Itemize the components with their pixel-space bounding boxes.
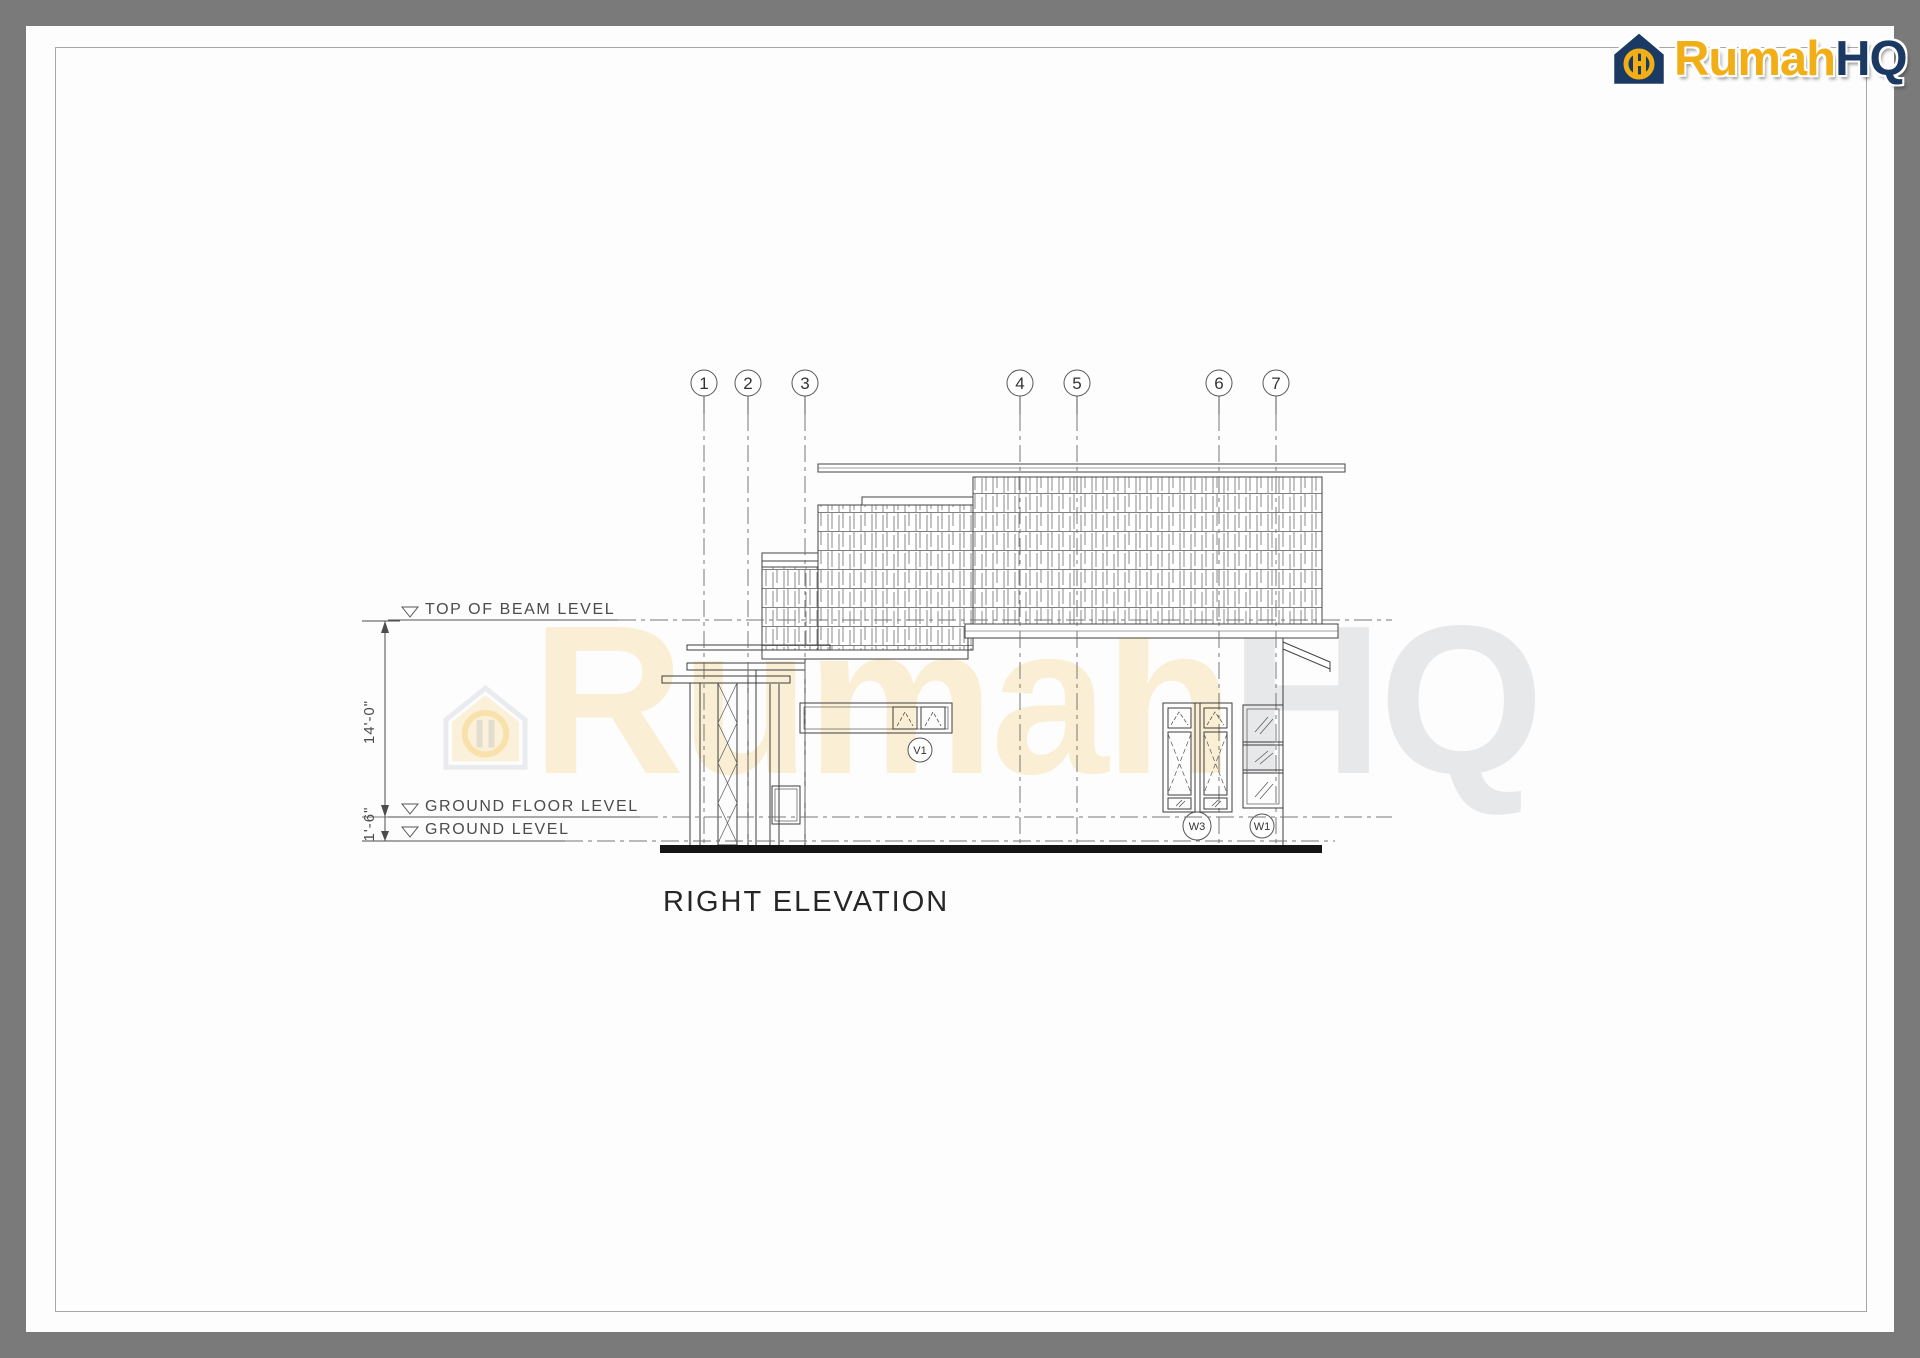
window-w3 — [1163, 703, 1232, 812]
level-label-ground: GROUND LEVEL — [425, 821, 570, 838]
window-tag-v1: V1 — [913, 745, 926, 757]
logo-hq-text: HQ — [1835, 31, 1907, 87]
dimension-label-14-0: 14'-0" — [361, 700, 378, 744]
dimension-label-1-6: 1'-6" — [361, 807, 378, 842]
ground-line — [660, 845, 1322, 853]
grid-bubble-label: 4 — [1015, 374, 1024, 393]
window-w1 — [1243, 705, 1283, 808]
window-tag-w3: W3 — [1189, 821, 1206, 833]
grid-bubble-label: 1 — [699, 374, 708, 393]
windows — [800, 703, 1283, 840]
elevation-drawing-svg: 1 2 3 4 5 6 7 — [0, 0, 1920, 1358]
rumahhq-logo-house-icon — [1608, 28, 1670, 90]
level-label-ground-floor: GROUND FLOOR LEVEL — [425, 798, 639, 815]
drawing-title: RIGHT ELEVATION — [663, 886, 949, 918]
page-background: Rumah HQ — [0, 0, 1920, 1358]
grid-bubble-label: 2 — [743, 374, 752, 393]
roof — [762, 464, 1345, 672]
grid-bubble-label: 3 — [800, 374, 809, 393]
logo-rumah-text: Rumah — [1674, 31, 1835, 87]
grid-bubble-label: 7 — [1271, 374, 1280, 393]
rumahhq-logo: Rumah HQ — [1608, 26, 1907, 92]
window-tag-w1: W1 — [1254, 821, 1271, 833]
grid-bubble-label: 6 — [1214, 374, 1223, 393]
level-label-top-of-beam: TOP OF BEAM LEVEL — [425, 601, 615, 618]
vent-band-v1 — [800, 703, 952, 733]
grid-bubble-label: 5 — [1072, 374, 1081, 393]
